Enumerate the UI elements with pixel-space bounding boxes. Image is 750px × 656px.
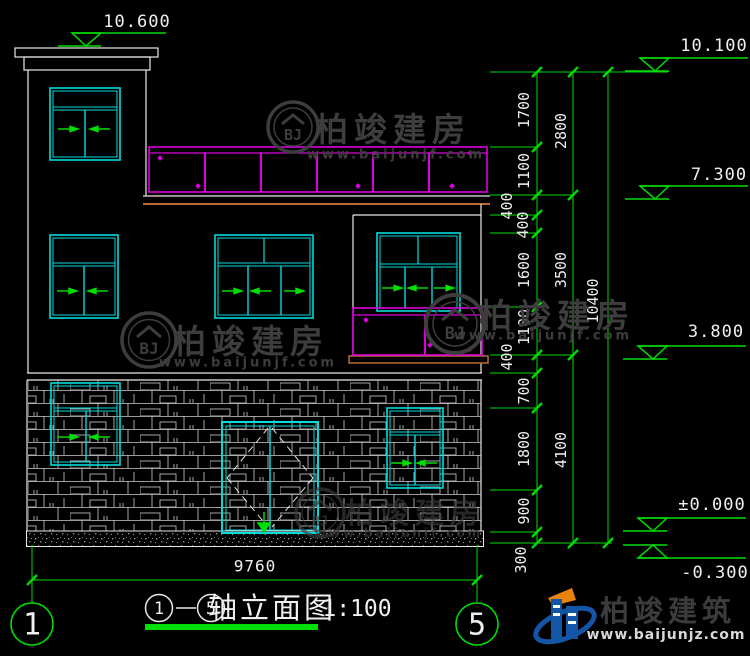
watermark-url: www.baijunjf.com [159,356,337,371]
brand-url: www.baijunjz.com [587,627,746,643]
svg-text:BJ: BJ [284,126,302,144]
tower-parapet [15,48,158,70]
watermark-logo-icon: BJ [268,102,318,152]
bay-window-sill [349,356,488,363]
dim-label: 900 [515,497,533,524]
window-floor2-bay [377,233,460,311]
dim-label: 300 [512,546,530,573]
dim-label: 700 [515,377,533,404]
elevation-label-floor3: 7.300 [691,165,747,185]
dim-label: 3500 [552,252,570,288]
dim-label: 1800 [515,431,533,467]
elevation-label-roof: 10.100 [680,36,747,56]
overall-width-label: 9760 [234,557,277,576]
elevation-marker-parapet [58,33,166,46]
title-axis-start: 1 [154,599,164,619]
elevation-drawing: BJ BJ BJ BJ [0,0,750,656]
elevation-label-parapet: 10.600 [103,12,170,32]
brand-name: 柏竣建筑 [600,588,736,630]
axis-bubble-5: 5 [468,608,486,643]
axis-bubble-1: 1 [23,608,41,643]
window-tower [50,88,120,160]
drawing-title: 轴立面图 [208,585,336,627]
elevation-label-ground: ±0.000 [678,495,745,515]
watermark-url: www.baijunjf.com [307,148,485,163]
elevation-marker-roof [625,58,748,71]
elevation-label-base: -0.300 [681,563,748,583]
dim-label: 4100 [552,432,570,468]
window-floor2-left [50,235,118,318]
watermark-text: 柏竣建房 [315,103,471,151]
cad-elevation-sheet: BJ BJ BJ BJ 10.600 10.100 7.300 3.800 ±0… [0,0,750,656]
elevation-marker-floor3 [625,186,748,199]
watermark-url: www.baijunjf.com [315,526,483,540]
dim-label: 2800 [552,113,570,149]
dim-label: 1100 [515,153,533,189]
elevation-label-floor2: 3.800 [688,322,744,342]
dim-label: 400 [498,343,516,370]
watermark-logo-icon: BJ [426,295,484,353]
dim-label: 1600 [515,252,533,288]
elevation-marker-floor2 [623,346,746,359]
dim-label: 400 [514,211,532,238]
dim-label: 1700 [515,92,533,128]
svg-text:BJ: BJ [139,339,158,358]
drawing-scale: 1:100 [322,596,391,622]
watermark-url: www.baijunjf.com [454,329,632,344]
elevation-marker-ground [623,518,746,531]
window-floor2-middle [215,235,313,318]
elevation-marker-base [623,545,746,558]
